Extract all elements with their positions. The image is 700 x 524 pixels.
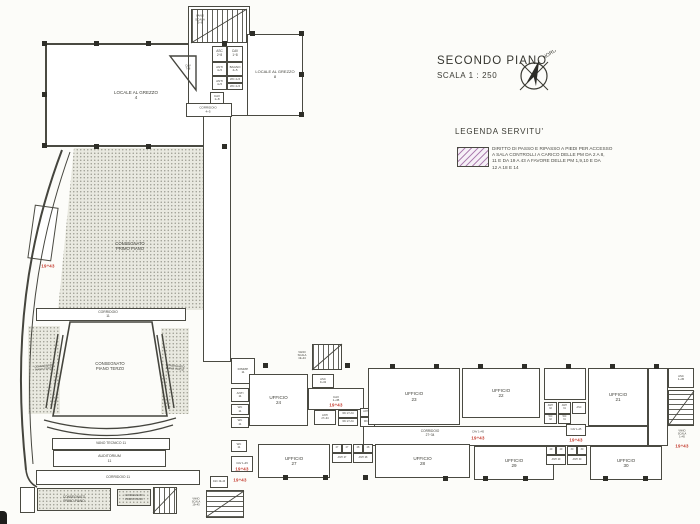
asc-9-43: ASC9÷43 [312, 374, 334, 388]
wc-4-5-b: WC 4÷5 [227, 83, 243, 90]
structural-column [610, 364, 615, 369]
servitu-red-annotation: 19÷43 [233, 478, 246, 483]
room-label: VANOSCALA19÷43 [192, 497, 201, 506]
asc-mid: ASC [572, 402, 586, 414]
asc-19-43: ASC 19÷43 [210, 476, 228, 488]
wc-30-c2: 30 [577, 446, 587, 455]
ufficio-29: UFFICIO29 [474, 446, 554, 480]
structural-column [263, 363, 268, 368]
ufficio-28: UFFICIO28 [375, 444, 470, 478]
structural-column [323, 475, 328, 480]
consegnato-box-1: CONSEGNATOPRIMO PIANO [37, 488, 111, 511]
asc-right: ASC1÷45 [668, 368, 694, 388]
ufficio-30: UFFICIO30 [590, 446, 662, 480]
anti-32: ANTI32 [544, 402, 557, 414]
anti-27-34: ANTI27÷34 [314, 410, 336, 425]
structural-column [443, 476, 448, 481]
room-label: VANOSCALA1÷45 [678, 429, 687, 438]
floor-plan-sheet: LOCALE AL GREZZO4ASC2÷8CAV1÷8ANTI4÷5BAGN… [0, 0, 700, 524]
servitu-red-annotation: 19÷43 [471, 436, 484, 441]
wc-27-34-b: WC 27÷34 [338, 418, 358, 426]
stair-right [668, 390, 694, 426]
wc-4-5-a: WC 4÷5 [227, 76, 243, 83]
servitu-red-annotation: 19÷43 [329, 403, 342, 408]
wc-29-c1: 29 [546, 446, 556, 455]
servitu-red-annotation: 19÷43 [235, 467, 248, 472]
stair-bottom-left-1 [153, 487, 177, 514]
scan-smudge [0, 511, 7, 524]
structural-column [345, 363, 350, 368]
structural-column [283, 475, 288, 480]
structural-column [94, 41, 99, 46]
stair-mid-top [312, 344, 342, 370]
asc-2-8: ASC2÷8 [212, 46, 227, 62]
structural-column [299, 112, 304, 117]
legend-hatch-swatch [457, 147, 489, 167]
structural-column [654, 364, 659, 369]
structural-column [603, 476, 608, 481]
structural-column [566, 364, 571, 369]
compass-nord-label: NORD [542, 50, 558, 61]
room-label: CAV 1÷45 [472, 430, 484, 433]
cav-1-8: CAV1÷8 [227, 46, 243, 62]
consegnato-box-2: CONSEGNATOPRIMO PIANO [117, 489, 151, 506]
cav-1-45-mid: CAV 1÷45 [566, 424, 586, 436]
wc-11-a: WC11 [231, 404, 249, 415]
room-label: VANOSCALA2÷8 [195, 15, 205, 26]
wc-28-c2: 28 [363, 444, 373, 453]
stair-bottom-left-2 [206, 490, 244, 518]
corridor-right-end [648, 368, 668, 446]
structural-column [222, 144, 227, 149]
wc-11-c: WC11 [231, 440, 247, 452]
wc-32: WC32 [544, 414, 557, 424]
wc-27-c2: 27 [342, 444, 352, 453]
structural-column [146, 41, 151, 46]
ufficio-24: UFFICIO24 [249, 374, 308, 426]
wc-11-b: WC11 [231, 417, 249, 428]
locale-al-grezzo-8: LOCALE AL GREZZO8 [247, 34, 303, 116]
structural-column [94, 144, 99, 149]
auditorium: AUDITORIUM11 [53, 450, 166, 467]
structural-column [42, 143, 47, 148]
structural-column [643, 476, 648, 481]
curve-room-left [27, 205, 58, 262]
wc-29-c2: 29 [556, 446, 566, 455]
anti-29-b: ANTI 29 [546, 455, 566, 465]
structural-column [523, 476, 528, 481]
ufficio-22: UFFICIO22 [462, 368, 540, 418]
structural-column [146, 144, 151, 149]
room-label: CONSEGNATOPRIMO PIANO [115, 241, 144, 251]
anti-4-5-b: ANTI4÷5 [212, 76, 227, 90]
anti-31: ANTI31 [558, 402, 571, 414]
sheet-scale: SCALA 1 : 250 [437, 71, 497, 80]
servitu-red-annotation: 19÷43 [41, 264, 54, 269]
wc-30-c1: 30 [567, 446, 577, 455]
room-label: CORRIDOIO11 [98, 310, 118, 318]
servitu-red-annotation: 19÷43 [569, 438, 582, 443]
corridoio-27-34 [363, 426, 648, 446]
structural-column [434, 364, 439, 369]
consegnato-main-area [58, 148, 203, 310]
wc-28-c1: 28 [353, 444, 363, 453]
structural-column [299, 72, 304, 77]
vano-above-cluster [544, 368, 586, 400]
corridoio-vertical [203, 116, 231, 362]
structural-column [363, 475, 368, 480]
anti-30-b: ANTI 30 [567, 455, 587, 465]
anti-4-5-a: ANTI4÷5 [212, 62, 227, 76]
wc-31: WC31 [558, 414, 571, 424]
ufficio-21: UFFICIO21 [588, 368, 648, 426]
structural-column [42, 92, 47, 97]
bagno-4-5: BAGNO4÷5 [227, 62, 243, 76]
anti-28-b: ANTI 28 [353, 453, 373, 463]
ufficio-23: UFFICIO23 [368, 368, 460, 425]
structural-column [250, 31, 255, 36]
structural-column [299, 31, 304, 36]
legend-heading: LEGENDA SERVITU' [455, 127, 544, 136]
ufficio-27: UFFICIO27 [258, 444, 330, 478]
vano-tecnico: VANO TECNICO 11 [52, 438, 170, 450]
legend-text: DIRITTO DI PASSO E RIPASSO A PIEDI PER A… [492, 146, 672, 171]
wc-27-34-a: WC 27÷34 [338, 410, 358, 418]
anti-27-b: ANTI 27 [332, 453, 352, 463]
room-label: CORRIDOIO27÷34 [421, 430, 439, 438]
anti-11: ANTI11 [231, 388, 249, 402]
servitu-red-annotation: 19÷43 [675, 444, 688, 449]
room-label: VANOSCALA19÷43 [298, 351, 307, 361]
room-label: CAV7÷8 [185, 65, 191, 72]
room-label: CONSEGNATOPIANO TERZO [95, 361, 124, 371]
corridoio-11-bottom: CORRIDOIO 11 [36, 470, 200, 485]
room-label: CORRIDOIO4÷5 [199, 106, 216, 113]
structural-column [483, 476, 488, 481]
structural-column [478, 364, 483, 369]
structural-column [522, 364, 527, 369]
structural-column [390, 364, 395, 369]
structural-column [222, 41, 227, 46]
wc-27-c1: 27 [332, 444, 342, 453]
rooms-far-left-bottom [20, 487, 35, 513]
structural-column [42, 41, 47, 46]
north-compass-icon: NORD [512, 50, 564, 96]
